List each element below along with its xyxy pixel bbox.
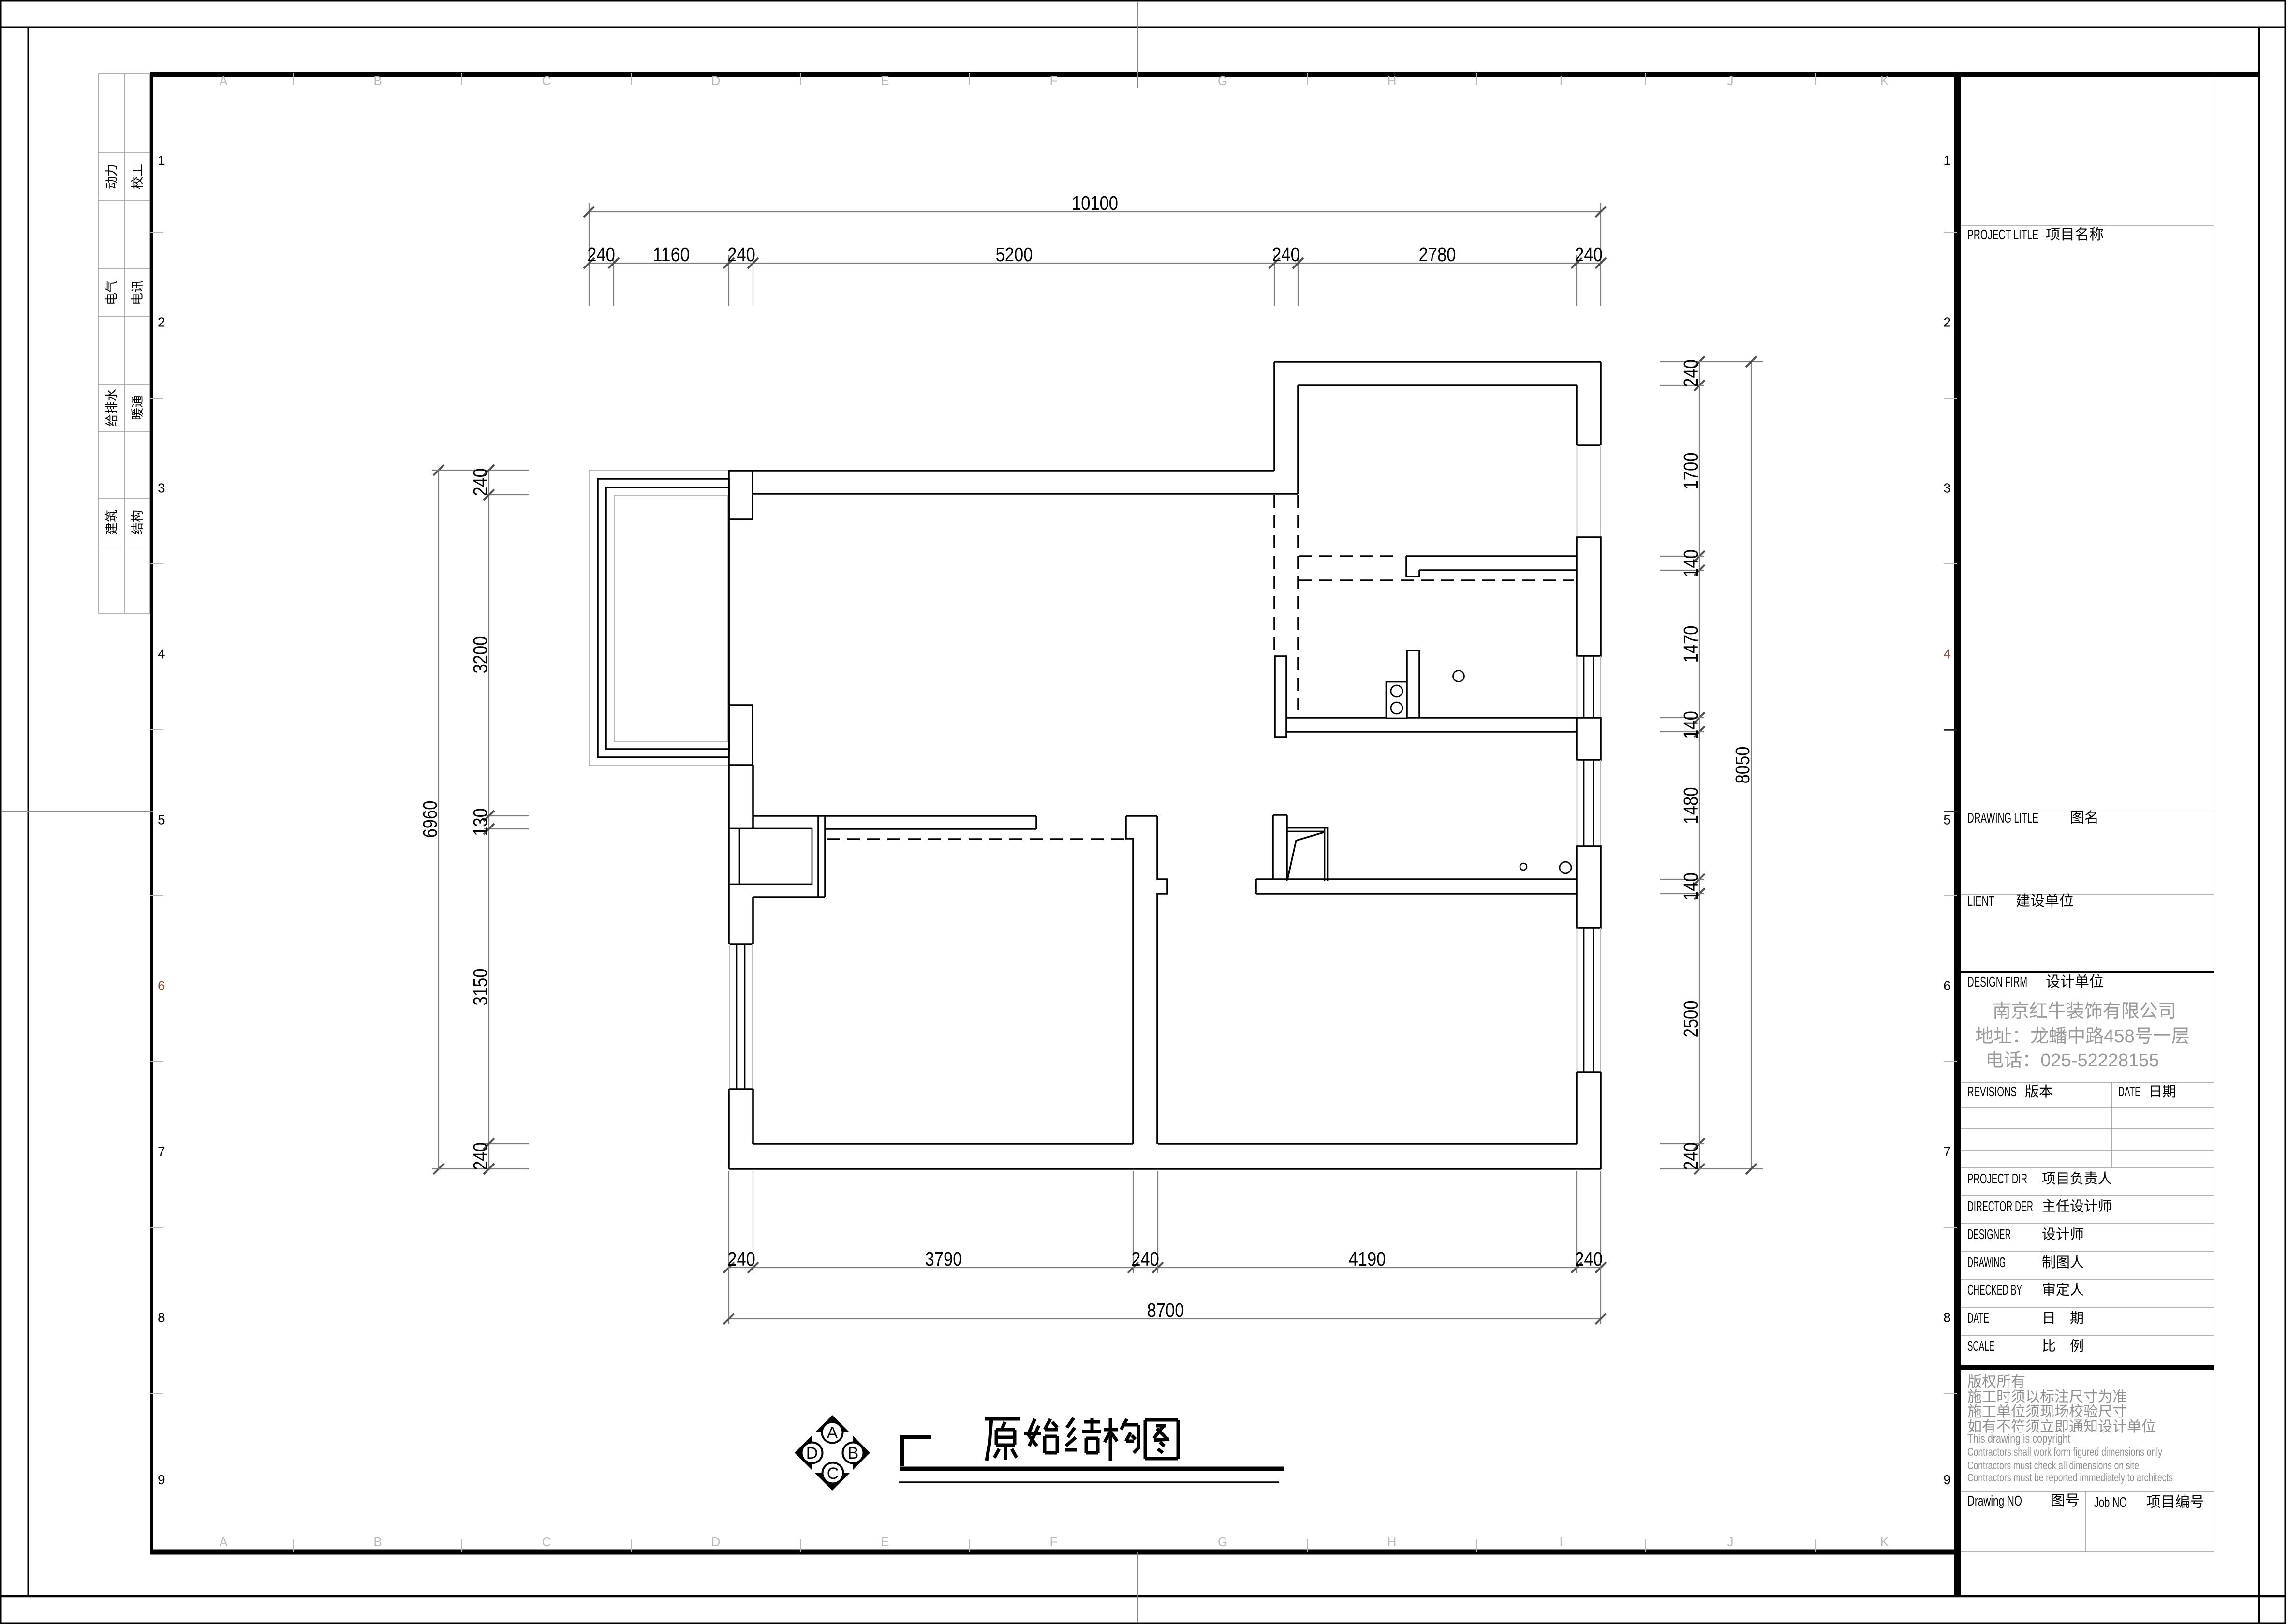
svg-text:240: 240 [1680, 359, 1702, 387]
svg-text:C: C [542, 74, 551, 88]
svg-text:REVISIONS: REVISIONS [1967, 1084, 2017, 1100]
svg-text:2: 2 [1943, 315, 1951, 330]
svg-text:4: 4 [1943, 647, 1951, 662]
svg-text:240: 240 [469, 1142, 491, 1170]
svg-text:项目编号: 项目编号 [2146, 1494, 2204, 1510]
svg-text:电气: 电气 [104, 280, 119, 305]
svg-text:140: 140 [1680, 872, 1702, 901]
svg-text:1470: 1470 [1680, 626, 1702, 663]
svg-text:3: 3 [158, 481, 165, 496]
svg-text:240: 240 [469, 468, 491, 496]
svg-text:暖通: 暖通 [130, 395, 145, 420]
svg-text:8050: 8050 [1731, 747, 1754, 784]
svg-text:3200: 3200 [469, 636, 491, 674]
svg-text:C: C [542, 1535, 551, 1549]
svg-text:DRAWING: DRAWING [1967, 1255, 2006, 1270]
svg-text:C: C [827, 1464, 839, 1483]
svg-text:项目名称: 项目名称 [2046, 227, 2104, 243]
svg-text:SCALE: SCALE [1967, 1339, 1994, 1354]
svg-text:I: I [1559, 74, 1563, 88]
svg-text:130: 130 [469, 808, 491, 836]
svg-text:Job NO: Job NO [2094, 1495, 2127, 1510]
svg-text:DESIGNER: DESIGNER [1967, 1227, 2011, 1242]
svg-text:1: 1 [158, 153, 165, 168]
svg-text:电话：025-52228155: 电话：025-52228155 [1985, 1050, 2159, 1071]
svg-text:B: B [373, 1535, 382, 1549]
svg-text:5: 5 [158, 812, 165, 827]
svg-text:CHECKED BY: CHECKED BY [1967, 1283, 2022, 1298]
svg-text:240: 240 [1131, 1248, 1159, 1270]
svg-text:G: G [1218, 1535, 1227, 1549]
svg-text:施工单位须现场校验尺寸: 施工单位须现场校验尺寸 [1967, 1404, 2127, 1420]
svg-text:DESIGN FIRM: DESIGN FIRM [1967, 974, 2027, 990]
svg-text:140: 140 [1680, 711, 1702, 739]
svg-text:6: 6 [1943, 978, 1951, 993]
svg-text:2500: 2500 [1680, 1001, 1702, 1038]
svg-text:B: B [848, 1444, 859, 1462]
svg-text:版权所有: 版权所有 [1967, 1374, 2025, 1390]
svg-text:F: F [1050, 74, 1058, 88]
svg-text:140: 140 [1680, 549, 1702, 577]
svg-text:PROJECT LITLE: PROJECT LITLE [1967, 227, 2038, 243]
svg-text:南京红牛装饰有限公司: 南京红牛装饰有限公司 [1993, 1001, 2176, 1021]
svg-text:日 期: 日 期 [2042, 1311, 2084, 1326]
svg-text:设计单位: 设计单位 [2046, 974, 2104, 990]
svg-text:3: 3 [1943, 481, 1951, 496]
svg-text:H: H [1388, 1535, 1397, 1549]
svg-text:240: 240 [727, 243, 755, 266]
svg-text:结构: 结构 [130, 510, 145, 535]
svg-text:5: 5 [1943, 812, 1951, 827]
svg-text:B: B [373, 74, 382, 88]
svg-text:8700: 8700 [1147, 1299, 1184, 1321]
svg-text:9: 9 [158, 1472, 165, 1487]
svg-text:E: E [881, 1535, 889, 1549]
svg-text:主任设计师: 主任设计师 [2042, 1198, 2112, 1214]
svg-text:Drawing NO: Drawing NO [1967, 1493, 2022, 1509]
svg-text:DATE: DATE [1967, 1311, 1989, 1326]
svg-text:240: 240 [1272, 243, 1300, 266]
svg-text:Contractors must check all dim: Contractors must check all dimensions on… [1967, 1459, 2139, 1472]
svg-text:H: H [1388, 74, 1397, 88]
svg-text:建设单位: 建设单位 [2016, 893, 2074, 909]
svg-text:比 例: 比 例 [2042, 1338, 2084, 1354]
svg-text:A: A [219, 1535, 228, 1549]
svg-text:J: J [1727, 1535, 1734, 1549]
svg-text:5200: 5200 [996, 243, 1033, 266]
svg-text:6960: 6960 [419, 801, 441, 838]
svg-text:1700: 1700 [1680, 453, 1702, 490]
svg-text:This drawing is copyright: This drawing is copyright [1967, 1432, 2070, 1446]
svg-text:1480: 1480 [1680, 787, 1702, 825]
svg-text:4: 4 [158, 647, 165, 662]
svg-text:7: 7 [158, 1144, 165, 1159]
svg-text:PROJECT DIR: PROJECT DIR [1967, 1171, 2027, 1187]
svg-text:项目负责人: 项目负责人 [2042, 1171, 2112, 1187]
svg-text:施工时须以标注尺寸为准: 施工时须以标注尺寸为准 [1967, 1389, 2127, 1405]
svg-text:地址：龙蟠中路458号一层: 地址：龙蟠中路458号一层 [1975, 1026, 2189, 1047]
svg-text:版本: 版本 [2025, 1084, 2053, 1100]
svg-text:D: D [711, 1535, 721, 1549]
svg-text:9: 9 [1943, 1472, 1951, 1487]
svg-text:Contractors must be reported i: Contractors must be reported immediately… [1967, 1471, 2173, 1484]
svg-text:8: 8 [1943, 1310, 1951, 1325]
svg-text:4190: 4190 [1349, 1248, 1386, 1270]
svg-text:240: 240 [1680, 1142, 1702, 1170]
svg-text:240: 240 [1575, 243, 1603, 266]
svg-text:审定人: 审定人 [2042, 1282, 2084, 1298]
svg-text:DRAWING LITLE: DRAWING LITLE [1967, 811, 2038, 826]
svg-text:240: 240 [1575, 1248, 1603, 1270]
svg-text:D: D [806, 1444, 818, 1462]
svg-text:240: 240 [727, 1248, 755, 1270]
svg-text:设计师: 设计师 [2042, 1226, 2084, 1242]
svg-text:K: K [1880, 1535, 1889, 1549]
svg-text:建筑: 建筑 [104, 510, 119, 535]
svg-text:DIRECTOR DER: DIRECTOR DER [1967, 1199, 2033, 1214]
svg-text:日期: 日期 [2148, 1084, 2176, 1100]
svg-text:动力: 动力 [104, 164, 119, 189]
svg-text:1: 1 [1943, 153, 1951, 168]
svg-text:图号: 图号 [2051, 1493, 2080, 1509]
svg-text:2780: 2780 [1419, 243, 1456, 266]
svg-text:G: G [1218, 74, 1227, 88]
svg-text:D: D [711, 74, 721, 88]
svg-text:1160: 1160 [653, 243, 690, 266]
svg-text:校工: 校工 [130, 164, 145, 189]
svg-text:LIENT: LIENT [1967, 894, 1994, 909]
svg-text:7: 7 [1943, 1144, 1951, 1159]
svg-text:DATE: DATE [2118, 1084, 2140, 1100]
svg-text:给排水: 给排水 [104, 389, 119, 427]
svg-text:E: E [881, 74, 889, 88]
svg-text:A: A [219, 74, 228, 88]
svg-text:电讯: 电讯 [130, 280, 145, 305]
svg-text:240: 240 [587, 243, 615, 266]
svg-text:10100: 10100 [1072, 192, 1118, 214]
svg-text:I: I [1559, 1535, 1563, 1549]
svg-text:F: F [1050, 1535, 1058, 1549]
svg-text:J: J [1727, 74, 1734, 88]
svg-text:2: 2 [158, 315, 165, 330]
svg-text:8: 8 [158, 1310, 165, 1325]
svg-text:3150: 3150 [469, 969, 491, 1006]
svg-text:Contractors shall work form fi: Contractors shall work form figured dime… [1967, 1446, 2162, 1458]
svg-text:6: 6 [158, 978, 165, 993]
svg-text:图名: 图名 [2070, 810, 2099, 826]
svg-text:K: K [1880, 74, 1889, 88]
svg-text:3790: 3790 [925, 1248, 962, 1270]
svg-text:A: A [827, 1424, 838, 1442]
svg-text:制图人: 制图人 [2042, 1255, 2084, 1270]
